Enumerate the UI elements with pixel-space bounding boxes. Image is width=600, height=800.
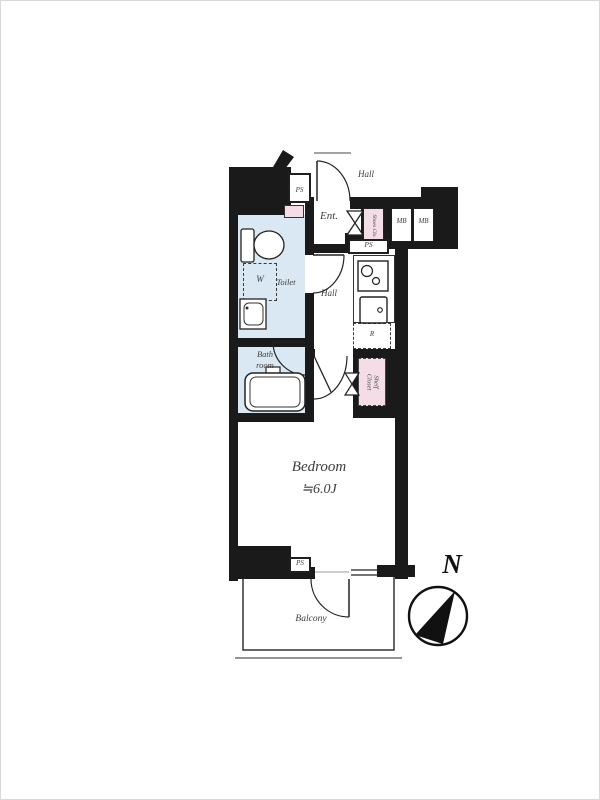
wall-toilet-bath-divider	[229, 338, 313, 347]
bedroom-door-arc	[314, 356, 347, 399]
wall-hall-bottom-jamb	[305, 349, 315, 357]
ps-mid-label: PS	[348, 241, 389, 249]
entrance-door-arc	[317, 161, 350, 201]
floorplan-canvas: PS Shoes Clo. MB MB PS PS Shelf Closet W…	[0, 0, 600, 800]
balcony-label: Balcony	[281, 614, 341, 624]
inner-hall-label: Hall	[309, 289, 349, 299]
wall-corridor-right-jamb	[350, 197, 361, 209]
compass-north-label: N	[437, 550, 467, 580]
entrance-label: Ent.	[311, 210, 347, 222]
shelf-closet-label: Shelf Closet	[365, 374, 379, 391]
upper-hall-label: Hall	[346, 170, 386, 180]
small-meter-box	[284, 205, 304, 218]
wall-bedroom-block	[238, 546, 291, 579]
mb2-label: MB	[413, 218, 434, 226]
wall-topright-notch	[421, 187, 458, 207]
kitchen-strip	[353, 255, 395, 323]
ps-top-label: PS	[288, 187, 311, 195]
wall-bath-bottom	[229, 413, 313, 422]
shelf-closet: Shelf Closet	[358, 358, 386, 406]
wall-entry-step	[310, 244, 350, 253]
compass-needle	[415, 591, 455, 644]
bedroom-label: Bedroom	[259, 459, 379, 476]
bedroom-door-leaf	[314, 356, 331, 392]
compass-circle	[409, 587, 467, 645]
bath-room-label: Bath room	[241, 349, 289, 371]
balcony-door-arc	[311, 579, 349, 617]
wall-toilet-right-lower	[305, 293, 314, 422]
wall-left-outer	[229, 167, 238, 581]
wall-top-left-mass	[229, 167, 291, 215]
toilet-label: Toilet	[266, 278, 306, 287]
shoes-closet-label: Shoes Clo.	[370, 215, 376, 239]
refrigerator-label: R	[353, 331, 391, 339]
wall-balcony-end-bar	[377, 565, 415, 577]
ps-bottom-label: PS	[289, 560, 311, 568]
bedroom-size-label: ≒6.0J	[259, 482, 379, 497]
mb1-label: MB	[391, 218, 412, 226]
